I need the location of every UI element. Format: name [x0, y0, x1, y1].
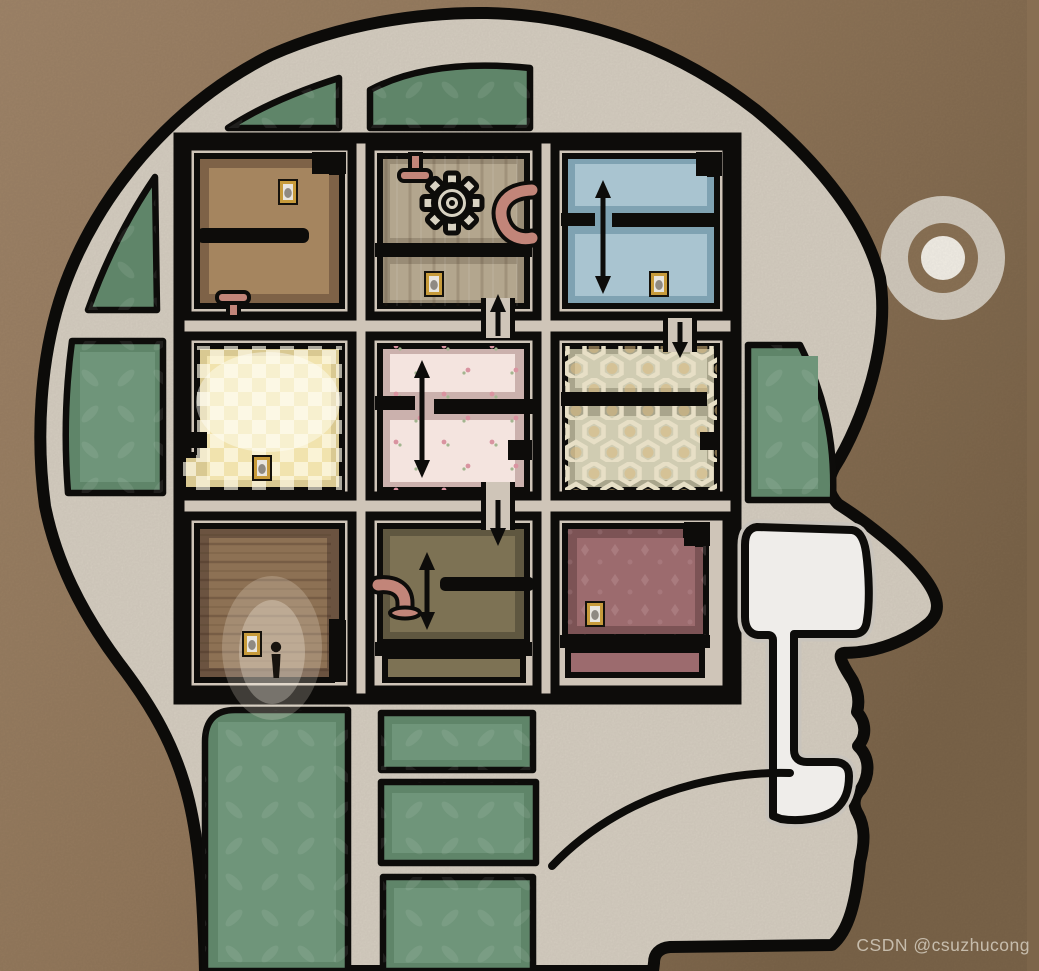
floral-texture	[380, 346, 527, 490]
wall-divider	[375, 642, 532, 656]
wall-divider	[560, 635, 710, 648]
wall-stub	[183, 432, 207, 448]
ear-button[interactable]	[881, 196, 1005, 320]
wall-step	[700, 432, 720, 450]
picture-frame[interactable]	[242, 631, 262, 657]
picture-frame[interactable]	[252, 455, 272, 481]
corner-wall	[312, 152, 346, 174]
ear-core	[921, 236, 965, 280]
wall-partition[interactable]	[197, 228, 309, 243]
corner-wall	[696, 152, 722, 176]
picture-frame[interactable]	[278, 179, 298, 205]
wall-divider	[561, 392, 707, 406]
light-glow	[196, 352, 340, 452]
picture-frame[interactable]	[649, 271, 669, 297]
wall-step	[330, 620, 346, 682]
game-screen: CSDN @csuzhucong	[0, 0, 1039, 971]
room-middle-center[interactable]	[375, 346, 534, 490]
room-middle-right[interactable]	[561, 346, 720, 490]
room-middle-left[interactable]	[183, 346, 342, 490]
gear-icon[interactable]	[422, 173, 482, 233]
wall-divider	[434, 399, 534, 414]
wall-divider-stub	[561, 213, 595, 226]
picture-frame[interactable]	[585, 601, 605, 627]
wall-divider	[375, 243, 532, 257]
rooms-grid	[179, 138, 736, 720]
scene-canvas: CSDN @csuzhucong	[0, 0, 1039, 971]
floor-inner-lower	[575, 234, 707, 296]
floor-strip	[385, 656, 523, 680]
room-top-center[interactable]	[375, 154, 532, 306]
wall-divider	[612, 213, 720, 227]
room-bottom-right[interactable]	[560, 522, 710, 675]
hex-texture	[565, 346, 717, 490]
corner-wall	[508, 440, 532, 460]
room-top-left[interactable]	[197, 152, 346, 317]
picture-frame[interactable]	[424, 271, 444, 297]
doorway-top-center-bottom[interactable]	[481, 294, 515, 338]
floor-inner-upper	[575, 164, 707, 206]
corner-wall	[684, 522, 710, 546]
room-bottom-center[interactable]	[375, 526, 534, 680]
wall-partition[interactable]	[440, 577, 534, 591]
wall-divider-stub	[375, 396, 415, 410]
doorway-middle-right-top[interactable]	[663, 318, 697, 358]
room-top-right[interactable]	[561, 152, 722, 306]
watermark: CSDN @csuzhucong	[856, 935, 1030, 955]
floor-strip	[568, 650, 702, 675]
